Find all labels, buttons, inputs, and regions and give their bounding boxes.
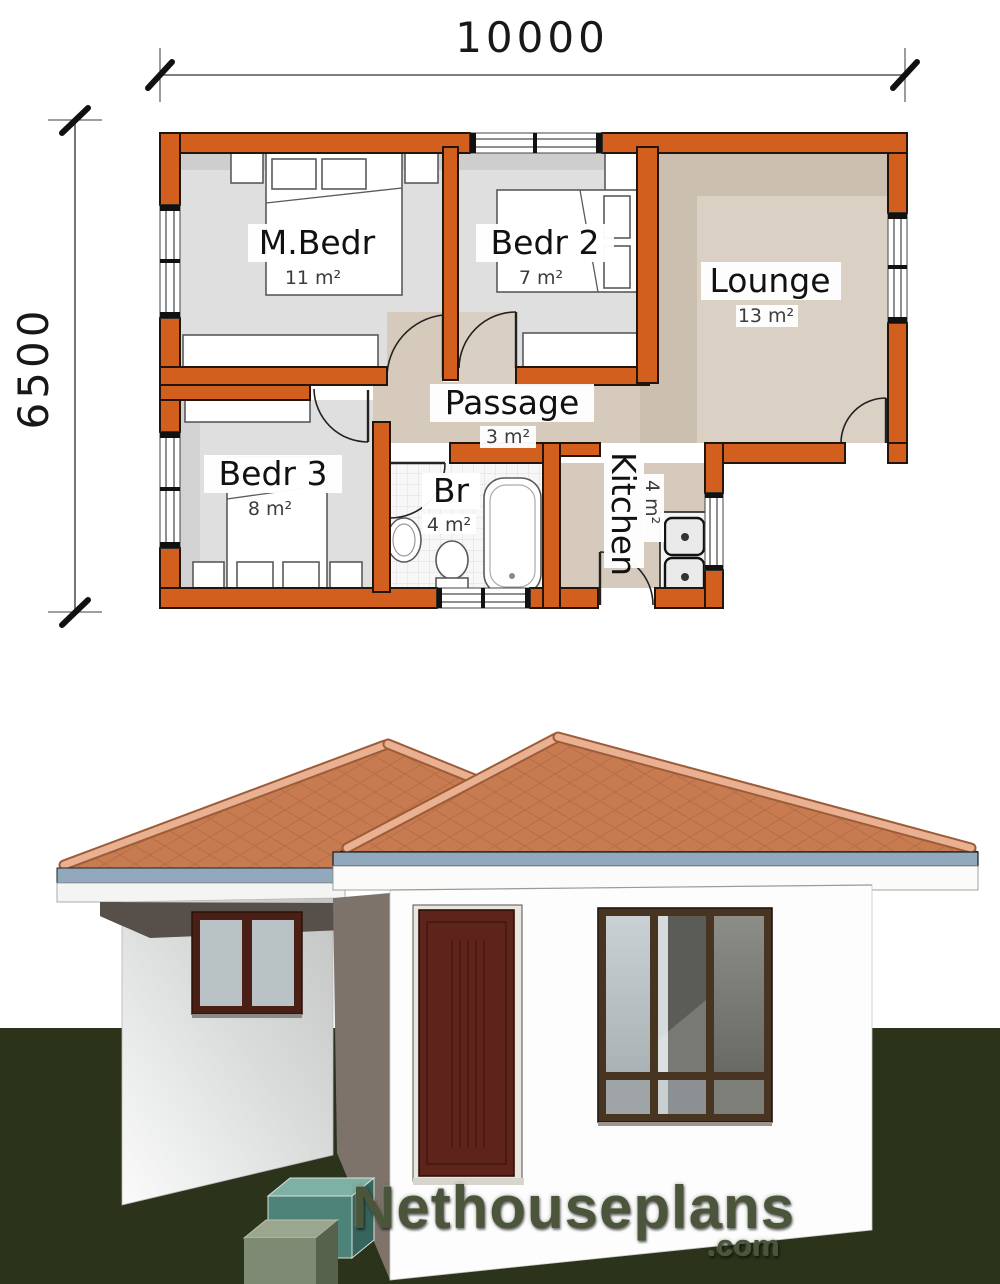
floor-plan: 10000 6500	[9, 13, 917, 625]
window-kitchen	[705, 493, 723, 570]
room-name: Passage	[445, 383, 580, 422]
room-name: Lounge	[709, 261, 830, 300]
window-top	[470, 133, 602, 153]
room-name: M.Bedr	[259, 223, 376, 262]
left-wing	[100, 898, 345, 1205]
dimension-left: 6500	[9, 108, 102, 625]
room-area: 4 m²	[427, 514, 471, 536]
room-label-br: Br 4 m²	[422, 471, 480, 536]
front-door	[413, 905, 524, 1185]
room-area: 3 m²	[486, 426, 530, 448]
room-name: Br	[433, 471, 470, 510]
dimension-top-label: 10000	[455, 13, 609, 62]
window-sill	[598, 1122, 772, 1126]
room-name: Kitchen	[604, 452, 643, 576]
big-window	[598, 908, 772, 1126]
small-window	[192, 912, 302, 1018]
house-plan-image: 10000 6500	[0, 0, 1000, 1284]
wardrobe-mbedr	[183, 335, 378, 367]
room-area: 4 m²	[641, 480, 663, 524]
room-name: Bedr 2	[491, 223, 600, 262]
room-area: 7 m²	[519, 267, 563, 289]
dresser-bedr2	[523, 333, 637, 368]
page: 10000 6500	[0, 0, 1000, 1284]
room-area: 11 m²	[285, 267, 341, 289]
main-fascia	[333, 852, 978, 890]
room-name: Bedr 3	[219, 454, 328, 493]
dimension-left-label: 6500	[9, 307, 58, 430]
toilet	[436, 541, 468, 579]
kitchen-sink	[660, 512, 709, 600]
window-lounge	[888, 213, 907, 323]
dimension-top: 10000	[148, 13, 917, 102]
wardrobe-bedr3	[185, 400, 310, 422]
window-bathroom	[437, 588, 530, 608]
logo: Nethouseplans .com	[352, 1178, 832, 1261]
room-area: 8 m²	[248, 498, 292, 520]
window-left-mbedr	[160, 205, 180, 318]
room-area: 13 m²	[738, 305, 794, 327]
window-left-bedr3	[160, 432, 180, 548]
